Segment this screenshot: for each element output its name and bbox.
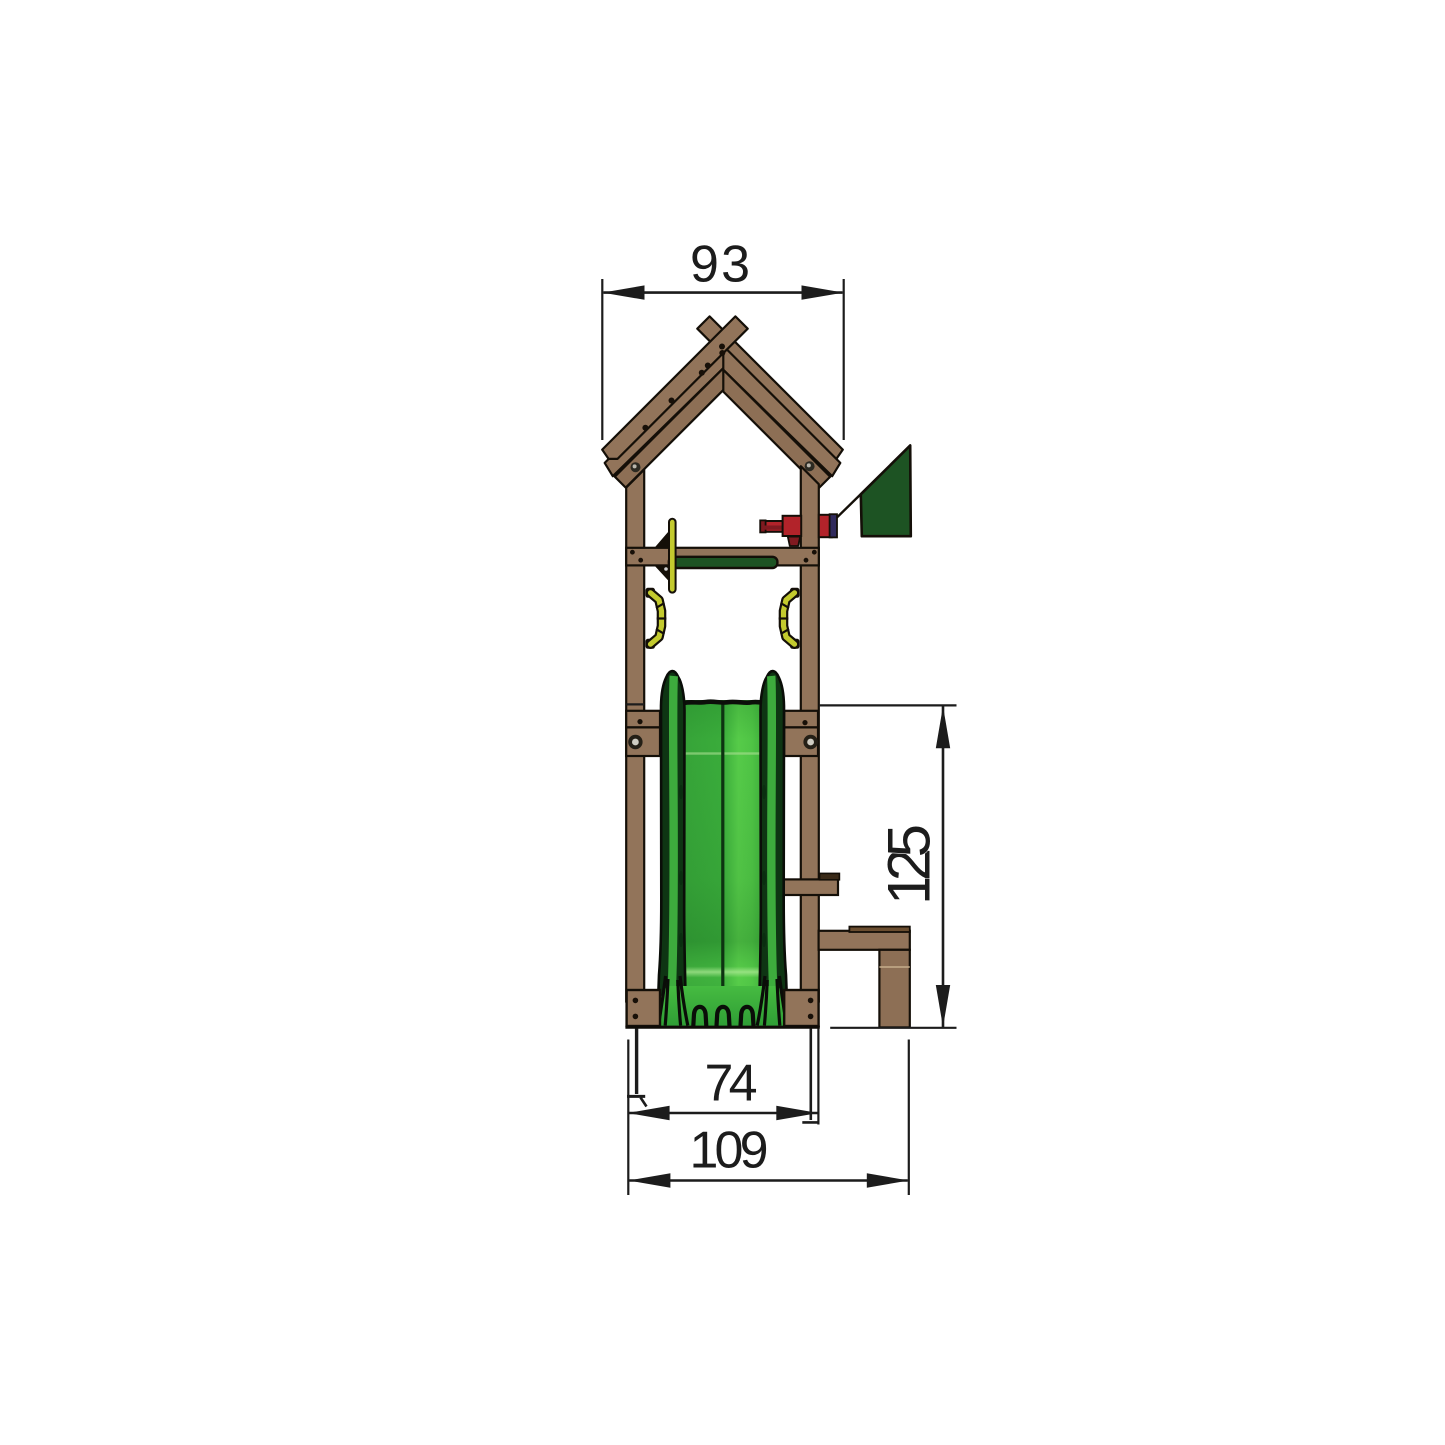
svg-text:125: 125 [876,823,943,905]
svg-text:74: 74 [705,1055,759,1113]
svg-text:93: 93 [690,236,751,294]
svg-text:109: 109 [690,1122,770,1180]
